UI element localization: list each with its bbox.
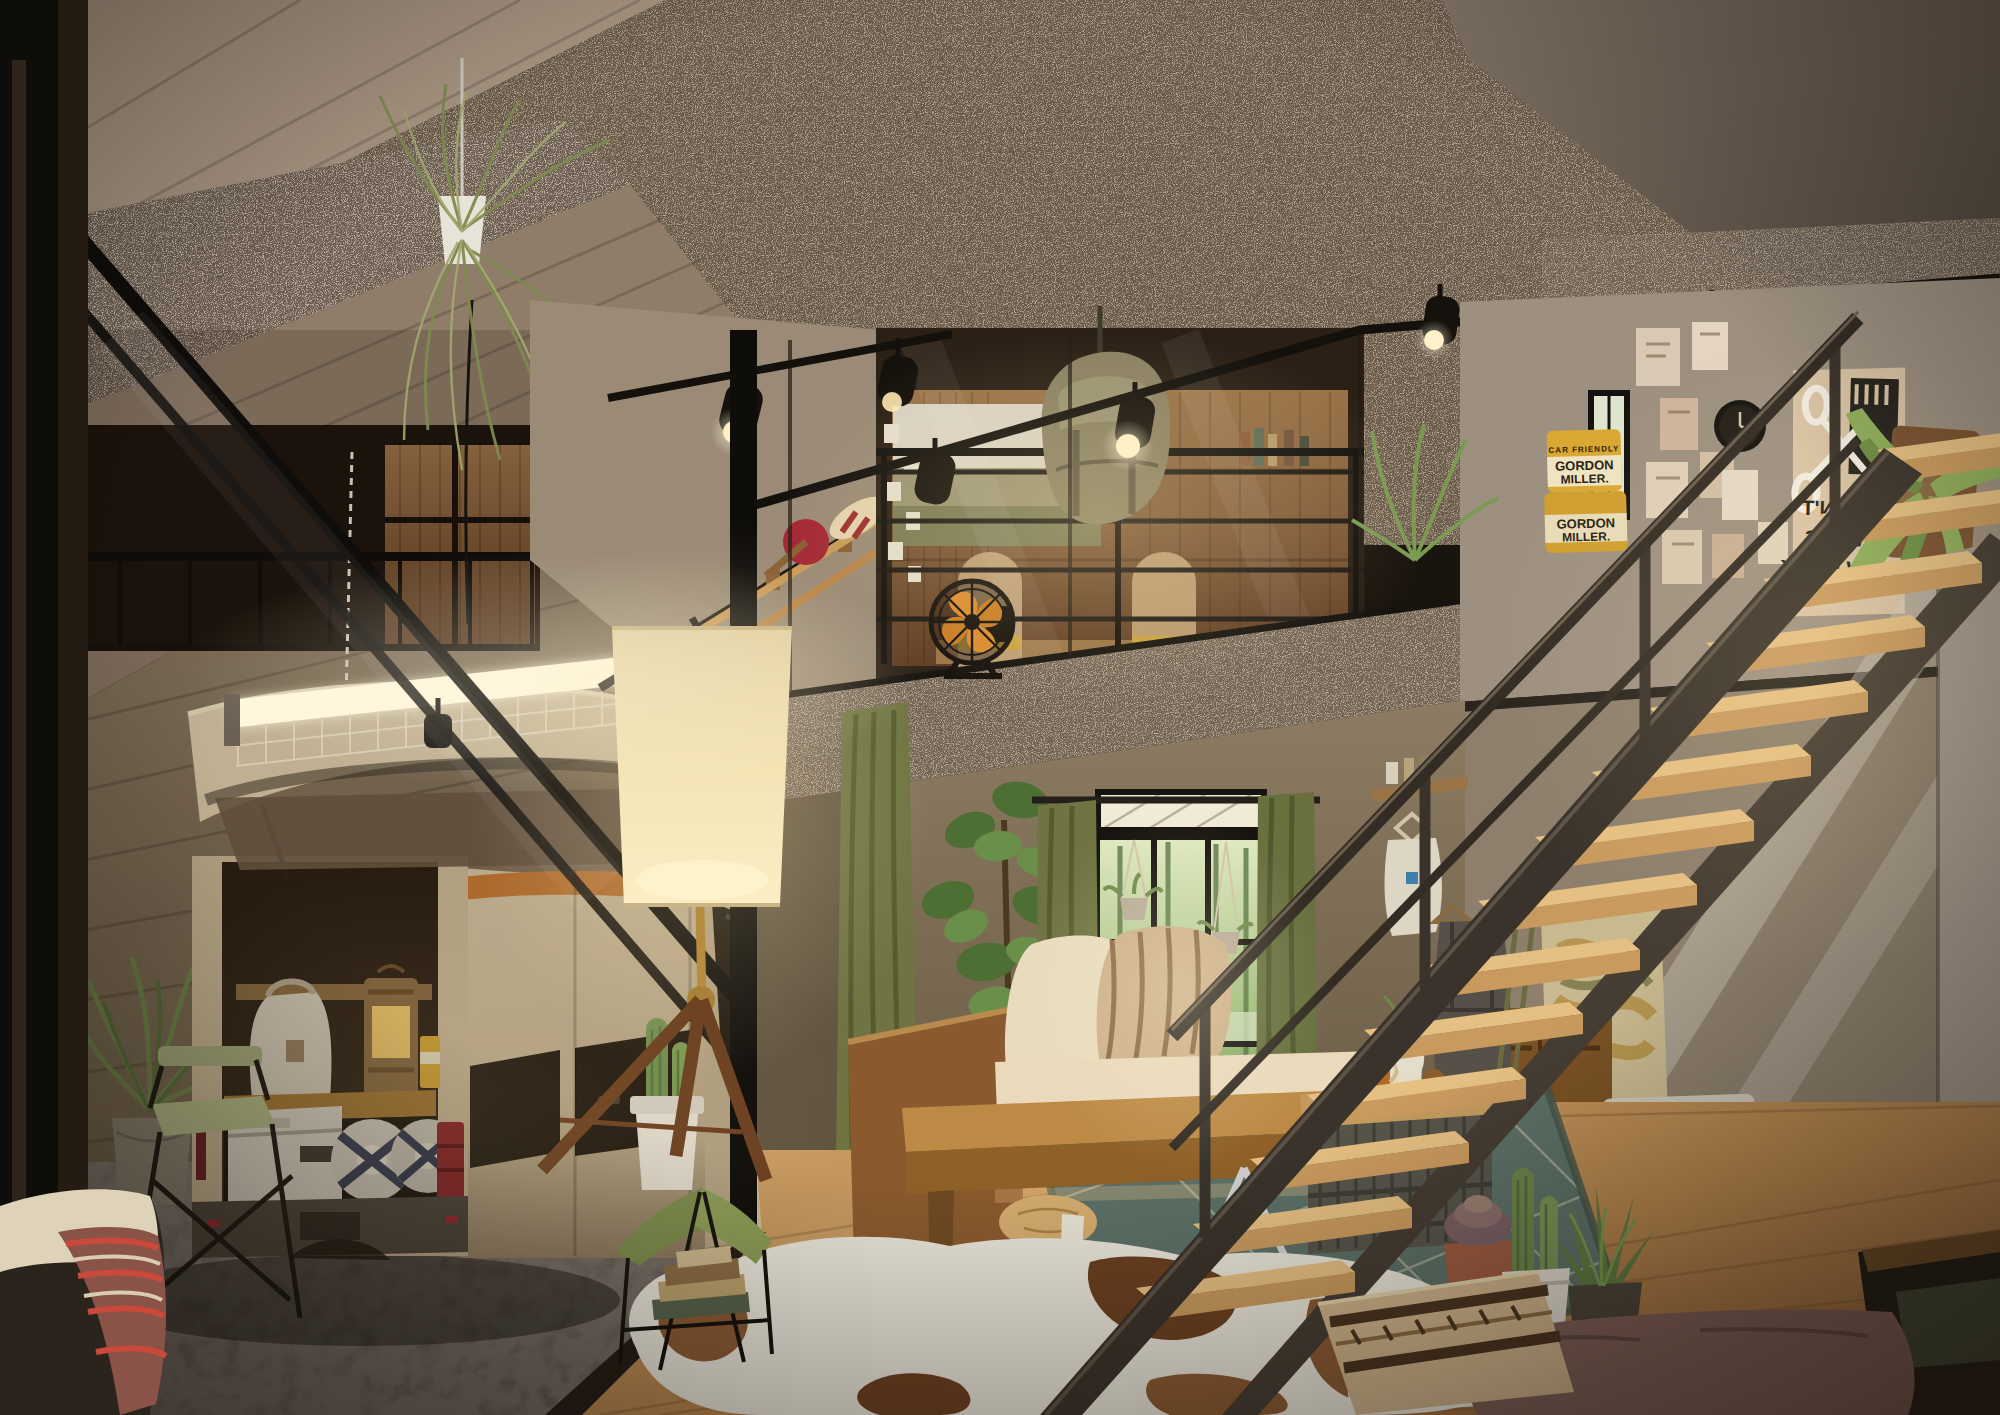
entry-bench (0, 1189, 166, 1415)
dark-green-cushion (1896, 1278, 2000, 1368)
interior-render: IT WON'T ALWAYS GROW BACK CAR FRIENDLY G… (0, 0, 2000, 1415)
can2-brand-2: MILLER. (1562, 529, 1610, 544)
can-top-label: CAR FRIENDLY (1548, 444, 1619, 455)
scene-canvas: IT WON'T ALWAYS GROW BACK CAR FRIENDLY G… (0, 0, 2000, 1415)
gordon-miller-cans: CAR FRIENDLY GORDON MILLER. GORDON MILLE… (1542, 429, 1627, 553)
can-brand-2: MILLER. (1561, 471, 1609, 486)
